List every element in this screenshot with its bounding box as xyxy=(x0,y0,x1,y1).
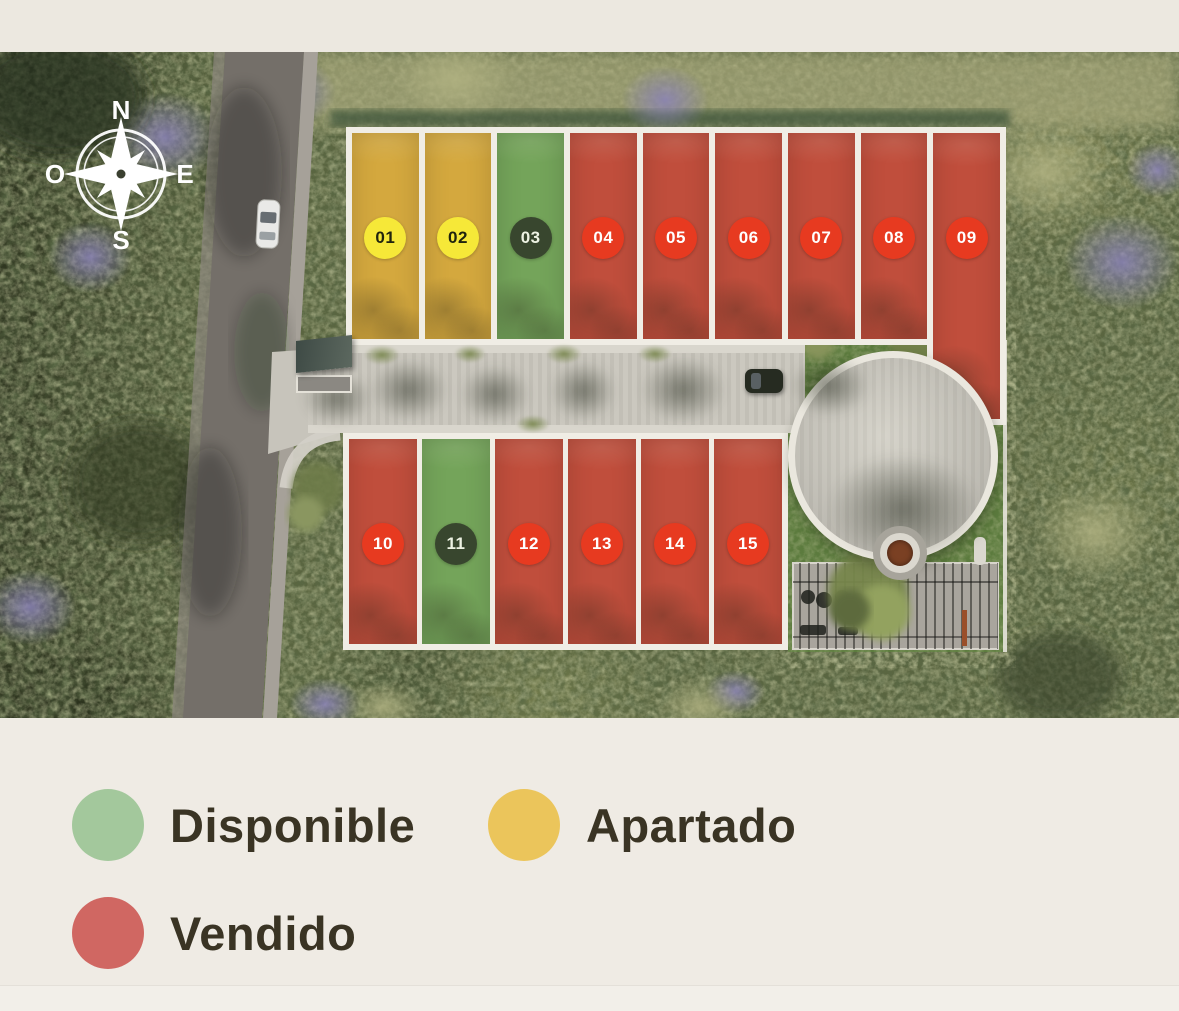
gatehouse-roof xyxy=(296,335,352,373)
compass-east-label: E xyxy=(176,159,193,189)
lot-03-badge: 03 xyxy=(510,217,552,259)
legend-item-vendido: Vendido xyxy=(72,897,356,969)
lot-15[interactable]: 15 xyxy=(714,439,782,644)
lot-07-badge: 07 xyxy=(800,217,842,259)
roundabout xyxy=(788,351,998,561)
tree-shadow xyxy=(370,359,448,421)
fountain xyxy=(887,540,913,566)
lot-06-badge: 06 xyxy=(728,217,770,259)
lot-06[interactable]: 06 xyxy=(715,133,782,339)
bush xyxy=(638,345,672,363)
lot-11-badge: 11 xyxy=(435,523,477,565)
lot-15-badge: 15 xyxy=(727,523,769,565)
lot-row-top: 010203040506070809 xyxy=(346,127,1006,345)
bush xyxy=(546,344,582,364)
bush xyxy=(516,415,550,433)
lot-12-badge: 12 xyxy=(508,523,550,565)
lot-10[interactable]: 10 xyxy=(349,439,417,644)
aerial-site-plan: N E S O 010203040506070809 101112131415 xyxy=(0,52,1179,718)
lot-08-badge: 08 xyxy=(873,217,915,259)
tree-shadow xyxy=(460,365,530,423)
tree-shadow xyxy=(550,361,616,421)
lot-14[interactable]: 14 xyxy=(641,439,709,644)
compass-north-label: N xyxy=(112,95,131,125)
lot-03[interactable]: 03 xyxy=(497,133,564,339)
gatehouse-booth xyxy=(296,375,352,393)
bush xyxy=(364,345,400,365)
parked-car xyxy=(745,369,783,393)
lot-08[interactable]: 08 xyxy=(861,133,928,339)
bush xyxy=(454,345,486,363)
lot-01-badge: 01 xyxy=(364,217,406,259)
lot-13[interactable]: 13 xyxy=(568,439,636,644)
entrance-gatehouse xyxy=(296,338,352,398)
top-margin-bar xyxy=(0,0,1179,52)
bottom-margin-bar xyxy=(0,985,1179,1011)
legend-label-disponible: Disponible xyxy=(170,798,415,853)
legend-item-apartado: Apartado xyxy=(488,789,796,861)
lot-04[interactable]: 04 xyxy=(570,133,637,339)
legend-swatch-apartado xyxy=(488,789,560,861)
lot-row-bottom: 101112131415 xyxy=(343,433,788,650)
bench xyxy=(974,537,986,565)
lot-01[interactable]: 01 xyxy=(352,133,419,339)
compass-south-label: S xyxy=(112,225,129,255)
tree-shadow xyxy=(640,357,726,423)
lot-10-badge: 10 xyxy=(362,523,404,565)
lot-09-badge: 09 xyxy=(946,217,988,259)
lot-05[interactable]: 05 xyxy=(643,133,710,339)
legend-swatch-vendido xyxy=(72,897,144,969)
legend-label-apartado: Apartado xyxy=(586,798,796,853)
lot-02[interactable]: 02 xyxy=(425,133,492,339)
legend-label-vendido: Vendido xyxy=(170,906,356,961)
lot-04-badge: 04 xyxy=(582,217,624,259)
lot-map-page: N E S O 010203040506070809 101112131415 xyxy=(0,0,1179,1011)
ladder-rack xyxy=(962,610,967,646)
lot-11[interactable]: 11 xyxy=(422,439,490,644)
tree-shadow xyxy=(789,356,869,416)
legend: Disponible Apartado Vendido xyxy=(0,718,1179,1011)
legend-item-disponible: Disponible xyxy=(72,789,415,861)
lot-02-badge: 02 xyxy=(437,217,479,259)
lot-07[interactable]: 07 xyxy=(788,133,855,339)
lot-13-badge: 13 xyxy=(581,523,623,565)
lot-14-badge: 14 xyxy=(654,523,696,565)
legend-swatch-disponible xyxy=(72,789,144,861)
white-car xyxy=(256,199,280,248)
lot-05-badge: 05 xyxy=(655,217,697,259)
compass-west-label: O xyxy=(45,159,65,189)
lot-12[interactable]: 12 xyxy=(495,439,563,644)
driveway xyxy=(308,345,805,433)
